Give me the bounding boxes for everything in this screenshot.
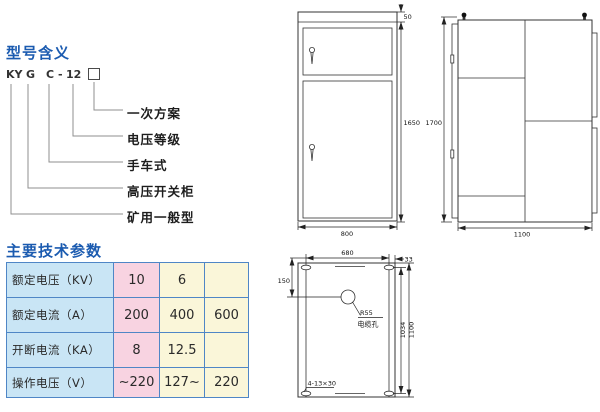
dim-plan-hole-pitch: 1034	[399, 322, 407, 339]
dim-plan-hole-span: 680	[341, 249, 353, 257]
dim-front-top-frame: 50	[404, 13, 412, 21]
technical-drawings: 50 1650 800	[0, 0, 600, 412]
dim-side-height: 1700	[425, 119, 442, 127]
dim-plan-depth: 1100	[408, 322, 416, 339]
dim-cable-hole-radius: R55	[360, 309, 373, 317]
mounting-slot-icon	[301, 391, 311, 396]
side-view-drawing: 1700 1100	[425, 13, 597, 239]
cable-hole-label: 电缆孔	[358, 320, 379, 329]
lifting-lug-icon	[462, 13, 467, 20]
dim-mounting-slots: 4-13×30	[308, 380, 336, 388]
dim-side-width: 1100	[514, 231, 531, 239]
side-handle-icon	[451, 55, 454, 63]
spec-sheet-page: 型号含义 主要技术参数 KY G C - 12 一次方案 电压等级 手车式 高压…	[0, 0, 600, 412]
mounting-slot-icon	[384, 391, 394, 396]
dim-plan-edge-offset: 33	[405, 256, 413, 264]
dim-front-height: 1650	[404, 119, 421, 127]
dim-front-width: 800	[341, 230, 353, 238]
plan-view-drawing: R55 电缆孔 4-13×30 680 33 150 1034 1100	[278, 249, 416, 397]
mounting-slot-icon	[384, 265, 394, 270]
model-tree-lines	[11, 82, 123, 214]
dim-plan-cable-offset: 150	[278, 277, 290, 285]
lifting-lug-icon	[582, 13, 587, 20]
side-handle-icon	[451, 150, 454, 158]
front-view-drawing: 50 1650 800	[298, 4, 420, 238]
mounting-slot-icon	[301, 265, 311, 270]
cable-hole	[341, 290, 355, 304]
